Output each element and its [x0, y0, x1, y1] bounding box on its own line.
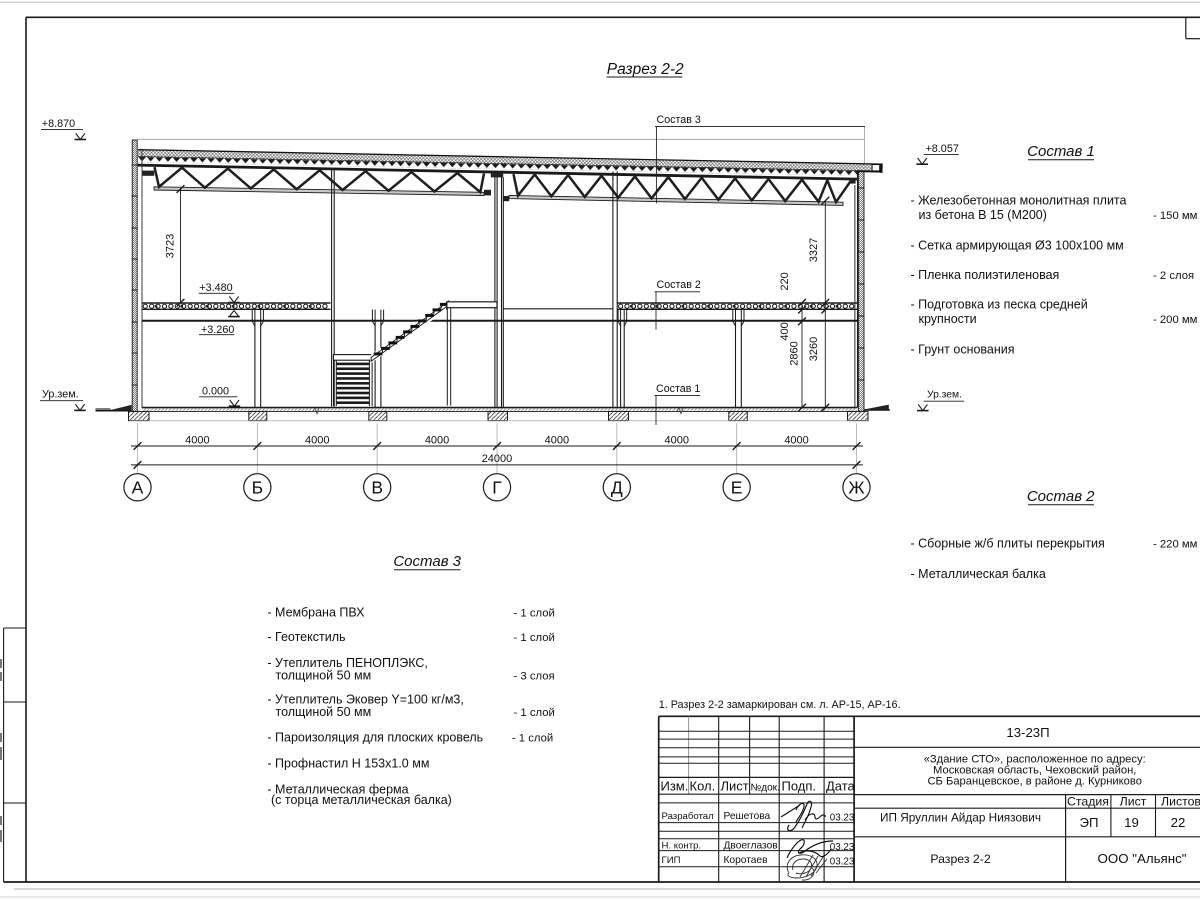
svg-text:Стадия: Стадия	[1067, 795, 1109, 809]
svg-text:ГИП: ГИП	[662, 855, 681, 866]
svg-text:СБ Баранцевское, в районе д. К: СБ Баранцевское, в районе д. Курниково	[927, 775, 1141, 787]
svg-text:Состав 3: Состав 3	[657, 114, 701, 126]
svg-text:ООО "Альянс": ООО "Альянс"	[1098, 851, 1187, 866]
svg-text:400: 400	[779, 322, 791, 340]
svg-text:3327: 3327	[808, 238, 820, 262]
svg-text:Лист: Лист	[721, 779, 749, 794]
svg-text:Разработал: Разработал	[662, 811, 714, 822]
svg-text:Состав 2: Состав 2	[1027, 488, 1095, 505]
svg-text:Решетова: Решетова	[724, 811, 771, 822]
svg-text:- Сборные ж/б плиты перекрытия: - Сборные ж/б плиты перекрытия	[911, 537, 1105, 551]
svg-text:Состав 1: Состав 1	[1027, 143, 1095, 160]
svg-text:Состав 1: Состав 1	[656, 383, 700, 395]
svg-text:03.23: 03.23	[830, 856, 855, 867]
svg-text:- 3 слоя: - 3 слоя	[514, 670, 555, 682]
svg-text:- 1 слой: - 1 слой	[512, 733, 553, 745]
svg-text:Ж: Ж	[848, 478, 864, 498]
svg-text:+3.260: +3.260	[201, 324, 234, 336]
svg-text:03.23: 03.23	[830, 842, 855, 853]
svg-text:- Профнастил Н 153х1.0 мм: - Профнастил Н 153х1.0 мм	[267, 757, 429, 771]
svg-text:толщиной 50 мм: толщиной 50 мм	[276, 668, 372, 682]
svg-text:Изм.: Изм.	[661, 779, 689, 794]
svg-text:- 200 мм: - 200 мм	[1153, 314, 1197, 326]
svg-text:+3.480: +3.480	[199, 282, 232, 294]
svg-text:220: 220	[779, 272, 791, 290]
svg-text:- Металлическая балка: - Металлическая балка	[911, 567, 1046, 581]
svg-text:4000: 4000	[784, 434, 808, 446]
svg-text:Коротаев: Коротаев	[724, 855, 768, 866]
svg-text:Двоеглазов: Двоеглазов	[724, 841, 778, 852]
svg-text:№док.: №док.	[751, 782, 780, 793]
svg-text:из бетона В 15 (М200): из бетона В 15 (М200)	[919, 208, 1047, 222]
svg-text:4000: 4000	[305, 434, 329, 446]
svg-text:Ур.зем.: Ур.зем.	[42, 389, 79, 401]
svg-text:- Геотекстиль: - Геотекстиль	[267, 630, 345, 644]
svg-text:- 1 слой: - 1 слой	[514, 608, 555, 620]
svg-text:3723: 3723	[165, 234, 177, 258]
svg-text:В: В	[371, 478, 383, 498]
svg-text:- 150 мм: - 150 мм	[1153, 210, 1197, 222]
svg-text:- 1 слой: - 1 слой	[514, 632, 555, 644]
svg-text:4000: 4000	[425, 434, 449, 446]
svg-text:- Железобетонная монолитная п: - Железобетонная монолитная плита	[911, 194, 1127, 208]
svg-text:4000: 4000	[185, 434, 209, 446]
svg-text:- Сетка армирующая Ø3 100х100: - Сетка армирующая Ø3 100х100 мм	[911, 239, 1124, 253]
svg-text:4000: 4000	[545, 434, 569, 446]
svg-text:4000: 4000	[664, 434, 688, 446]
svg-text:03.23: 03.23	[830, 813, 855, 824]
svg-text:Состав 2: Состав 2	[657, 279, 701, 291]
svg-text:Дата: Дата	[826, 779, 856, 794]
svg-text:- Грунт основания: - Грунт основания	[911, 343, 1015, 357]
svg-text:0.000: 0.000	[202, 385, 229, 397]
svg-text:Г: Г	[492, 478, 502, 498]
svg-text:Подп.: Подп.	[782, 779, 817, 794]
svg-text:Д: Д	[611, 478, 623, 498]
svg-text:1. Разрез 2-2 замаркирован см.: 1. Разрез 2-2 замаркирован см. л. АР-15,…	[659, 699, 901, 711]
svg-text:13-23П: 13-23П	[1006, 725, 1049, 740]
svg-text:толщиной 50 мм: толщиной 50 мм	[276, 705, 372, 719]
svg-text:2860: 2860	[789, 341, 801, 365]
svg-text:Ур.зем.: Ур.зем.	[927, 390, 962, 401]
svg-text:+8.057: +8.057	[926, 143, 959, 155]
svg-text:А: А	[132, 478, 144, 498]
svg-text:- 220 мм: - 220 мм	[1153, 539, 1197, 551]
svg-text:+8.870: +8.870	[42, 118, 75, 130]
svg-text:ИП Яруллин Айдар Ниязович: ИП Яруллин Айдар Ниязович	[880, 811, 1041, 825]
svg-text:(с торца металлическая балка): (с торца металлическая балка)	[271, 793, 452, 807]
svg-text:19: 19	[1124, 815, 1139, 830]
svg-text:Б: Б	[252, 478, 263, 498]
svg-text:Кол.: Кол.	[690, 779, 716, 794]
svg-text:- 2 слоя: - 2 слоя	[1153, 270, 1194, 282]
svg-text:- Пленка полиэтиленовая: - Пленка полиэтиленовая	[911, 268, 1060, 282]
svg-text:Листов: Листов	[1161, 795, 1200, 809]
svg-text:Е: Е	[731, 478, 743, 498]
svg-text:Состав 3: Состав 3	[393, 553, 461, 570]
svg-text:Н. контр.: Н. контр.	[662, 841, 702, 852]
svg-text:24000: 24000	[482, 453, 513, 465]
svg-text:крупности: крупности	[919, 312, 977, 326]
svg-text:- Мембрана ПВХ: - Мембрана ПВХ	[267, 606, 365, 620]
svg-text:3260: 3260	[808, 337, 820, 361]
svg-text:- Подготовка из песка средней: - Подготовка из песка средней	[911, 298, 1088, 312]
svg-text:Разрез 2-2: Разрез 2-2	[930, 852, 991, 866]
svg-text:- 1 слой: - 1 слой	[514, 707, 555, 719]
svg-text:ЭП: ЭП	[1080, 815, 1099, 830]
svg-text:- Пароизоляция для плоских кро: - Пароизоляция для плоских кровель	[267, 731, 483, 745]
svg-text:Лист: Лист	[1120, 795, 1147, 809]
svg-text:22: 22	[1171, 815, 1186, 830]
svg-text:Разрез 2-2: Разрез 2-2	[607, 61, 684, 78]
